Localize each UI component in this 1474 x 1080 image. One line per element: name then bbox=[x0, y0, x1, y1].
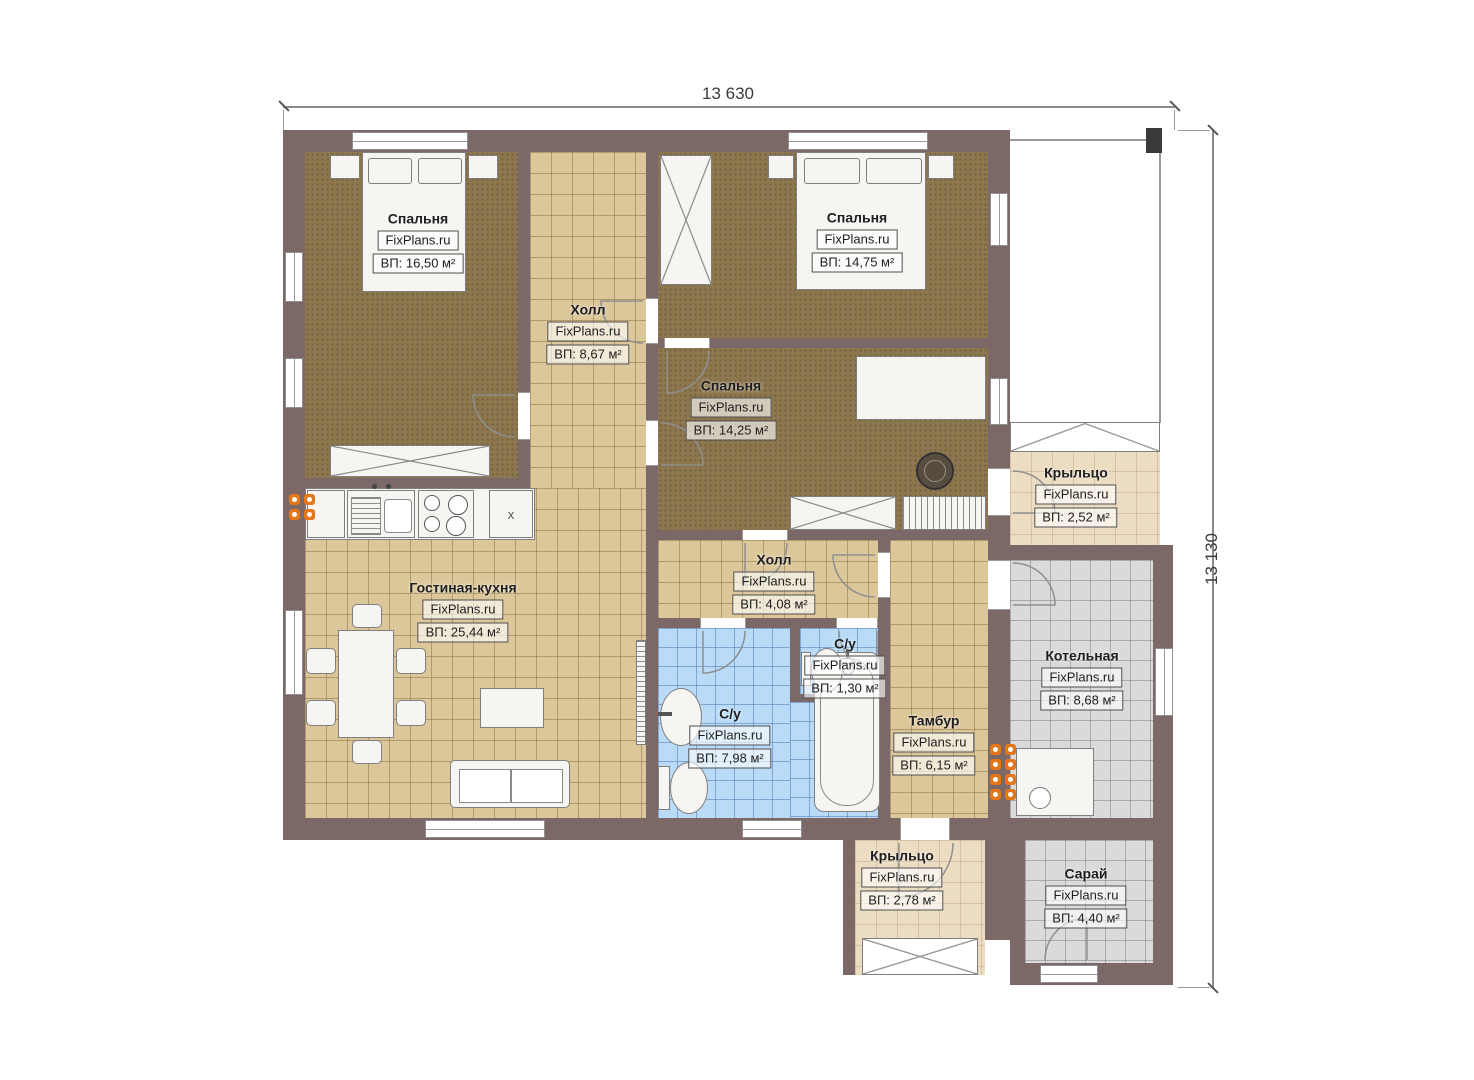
room-watermark: FixPlans.ru bbox=[689, 726, 770, 746]
desk bbox=[856, 356, 986, 420]
dimension-line-top bbox=[283, 106, 1175, 108]
room-name: Крыльцо bbox=[1044, 465, 1108, 481]
room-name: Спальня bbox=[827, 210, 887, 226]
wall-shed-left bbox=[1010, 840, 1025, 963]
pillow bbox=[804, 158, 860, 184]
burner-icon bbox=[424, 495, 440, 511]
door-opening bbox=[646, 298, 658, 344]
cabinet-mark: x bbox=[508, 507, 515, 522]
room-label-hall-small: Холл FixPlans.ru ВП: 4,08 м² bbox=[732, 552, 815, 615]
bath-sink-tap bbox=[658, 712, 672, 716]
door-opening bbox=[742, 530, 788, 540]
door-opening bbox=[900, 818, 950, 840]
room-name: Холл bbox=[570, 302, 605, 318]
wall-boiler-shed bbox=[1010, 818, 1173, 840]
room-name: Сарай bbox=[1064, 866, 1107, 882]
window bbox=[990, 193, 1008, 246]
room-label-tambour: Тамбур FixPlans.ru ВП: 6,15 м² bbox=[892, 713, 975, 776]
burner-icon bbox=[446, 516, 466, 536]
porch-right-steps bbox=[1010, 422, 1160, 452]
room-label-bedroom-2: Спальня FixPlans.ru ВП: 14,75 м² bbox=[812, 210, 903, 273]
nightstand bbox=[928, 155, 954, 179]
shelf bbox=[636, 640, 646, 745]
room-label-wc-small: С/у FixPlans.ru ВП: 1,30 м² bbox=[803, 636, 886, 699]
cabinet: x bbox=[489, 490, 533, 538]
room-label-bathroom: С/у FixPlans.ru ВП: 7,98 м² bbox=[688, 706, 771, 769]
room-area: ВП: 16,50 м² bbox=[373, 254, 464, 274]
room-watermark: FixPlans.ru bbox=[422, 600, 503, 620]
room-name: С/у bbox=[834, 636, 856, 652]
room-label-bedroom-3: Спальня FixPlans.ru ВП: 14,25 м² bbox=[686, 378, 777, 441]
room-area: ВП: 8,68 м² bbox=[1040, 691, 1123, 711]
wardrobe-x-icon bbox=[331, 446, 489, 476]
wardrobe-x-icon bbox=[791, 497, 895, 529]
floor-tambour bbox=[890, 540, 988, 818]
room-label-boiler-room: Котельная FixPlans.ru ВП: 8,68 м² bbox=[1040, 648, 1123, 711]
room-area: ВП: 7,98 м² bbox=[688, 749, 771, 769]
room-area: ВП: 14,25 м² bbox=[686, 421, 777, 441]
room-watermark: FixPlans.ru bbox=[690, 398, 771, 418]
room-watermark: FixPlans.ru bbox=[733, 572, 814, 592]
room-label-porch-bottom: Крыльцо FixPlans.ru ВП: 2,78 м² bbox=[860, 848, 943, 911]
door-arc bbox=[832, 554, 876, 598]
burner-icon bbox=[424, 516, 440, 532]
room-watermark: FixPlans.ru bbox=[1035, 485, 1116, 505]
room-label-living-kitchen: Гостиная-кухня FixPlans.ru ВП: 25,44 м² bbox=[409, 580, 516, 643]
wall-porch-bottom-left bbox=[843, 840, 855, 975]
room-name: Спальня bbox=[701, 378, 761, 394]
door-opening bbox=[518, 392, 530, 440]
steps-hatch-icon bbox=[1011, 423, 1159, 451]
room-watermark: FixPlans.ru bbox=[377, 231, 458, 251]
room-area: ВП: 2,78 м² bbox=[860, 891, 943, 911]
window bbox=[285, 252, 303, 302]
chair bbox=[306, 648, 336, 674]
room-label-shed: Сарай FixPlans.ru ВП: 4,40 м² bbox=[1044, 866, 1127, 929]
wall-porch-bottom-right bbox=[985, 840, 1010, 940]
door-opening bbox=[664, 338, 710, 348]
porch-bottom-steps bbox=[862, 938, 978, 975]
door-arc bbox=[1012, 562, 1056, 606]
extension-line bbox=[1178, 130, 1210, 131]
door-opening bbox=[988, 560, 1010, 610]
nightstand bbox=[768, 155, 794, 179]
room-label-porch-right: Крыльцо FixPlans.ru ВП: 2,52 м² bbox=[1034, 465, 1117, 528]
nightstand bbox=[468, 155, 498, 179]
faucet-dot bbox=[386, 484, 391, 489]
pillow bbox=[866, 158, 922, 184]
chair bbox=[306, 700, 336, 726]
wall-hall-bedrooms bbox=[646, 152, 658, 818]
door-opening bbox=[988, 468, 1010, 516]
boundary-line-top bbox=[1010, 139, 1160, 141]
wall-boiler-top bbox=[1010, 545, 1153, 560]
wardrobe bbox=[660, 155, 712, 285]
room-watermark: FixPlans.ru bbox=[893, 733, 974, 753]
door-opening bbox=[646, 420, 658, 466]
pillow bbox=[368, 158, 412, 184]
steps-hatch-icon bbox=[863, 939, 977, 974]
room-name: С/у bbox=[719, 706, 741, 722]
dimension-value-right: 13 130 bbox=[1202, 533, 1222, 585]
room-watermark: FixPlans.ru bbox=[804, 656, 885, 676]
chair bbox=[396, 700, 426, 726]
dimension-value-top: 13 630 bbox=[702, 84, 754, 104]
room-watermark: FixPlans.ru bbox=[861, 868, 942, 888]
room-watermark: FixPlans.ru bbox=[816, 230, 897, 250]
window bbox=[1155, 648, 1173, 716]
wall-bedroom3-hall bbox=[658, 530, 988, 540]
burner-icon bbox=[448, 495, 468, 515]
chair bbox=[352, 740, 382, 764]
wardrobe-x-icon bbox=[661, 156, 711, 284]
room-area: ВП: 2,52 м² bbox=[1034, 508, 1117, 528]
chair bbox=[396, 648, 426, 674]
coffee-table bbox=[480, 688, 544, 728]
room-area: ВП: 4,40 м² bbox=[1044, 909, 1127, 929]
sink-basin bbox=[384, 499, 412, 533]
room-name: Гостиная-кухня bbox=[409, 580, 516, 596]
room-watermark: FixPlans.ru bbox=[1045, 886, 1126, 906]
drainboard bbox=[351, 497, 381, 535]
toilet-tank bbox=[658, 766, 670, 810]
door-arc bbox=[472, 394, 516, 438]
pillar bbox=[1146, 128, 1162, 153]
radiator bbox=[990, 744, 1016, 800]
room-area: ВП: 14,75 м² bbox=[812, 253, 903, 273]
dresser bbox=[902, 496, 986, 530]
room-name: Крыльцо bbox=[870, 848, 934, 864]
faucet-dot bbox=[372, 484, 377, 489]
extension-line bbox=[1174, 110, 1175, 130]
sofa-cushion bbox=[459, 769, 511, 803]
kitchen-sink bbox=[347, 490, 415, 538]
room-watermark: FixPlans.ru bbox=[547, 322, 628, 342]
window bbox=[425, 820, 545, 838]
boiler bbox=[1016, 748, 1094, 816]
window bbox=[788, 132, 928, 150]
room-name: Холл bbox=[756, 552, 791, 568]
window bbox=[285, 610, 303, 695]
wall-wc-left bbox=[790, 628, 800, 694]
room-area: ВП: 8,67 м² bbox=[546, 345, 629, 365]
sofa-cushion bbox=[511, 769, 563, 803]
window bbox=[742, 820, 802, 838]
room-area: ВП: 4,08 м² bbox=[732, 595, 815, 615]
window bbox=[285, 358, 303, 408]
extension-line bbox=[283, 110, 284, 130]
pillow bbox=[418, 158, 462, 184]
room-name: Спальня bbox=[388, 211, 448, 227]
door-arc bbox=[702, 630, 746, 674]
wardrobe bbox=[790, 496, 896, 530]
room-area: ВП: 6,15 м² bbox=[892, 756, 975, 776]
door-opening bbox=[700, 618, 746, 628]
room-name: Тамбур bbox=[909, 713, 960, 729]
window bbox=[990, 378, 1008, 425]
toilet-bowl bbox=[670, 762, 708, 814]
floor-plan: x Спальня FixPlans.ru ВП: 16,50 м² Холл … bbox=[0, 0, 1474, 1080]
door-opening bbox=[836, 618, 878, 628]
dining-table bbox=[338, 630, 394, 738]
door-opening bbox=[878, 552, 890, 598]
boundary-line-right bbox=[1159, 139, 1161, 423]
room-area: ВП: 1,30 м² bbox=[803, 679, 886, 699]
room-watermark: FixPlans.ru bbox=[1041, 668, 1122, 688]
chair bbox=[352, 604, 382, 628]
nightstand bbox=[330, 155, 360, 179]
radiator bbox=[289, 494, 315, 520]
room-label-hall: Холл FixPlans.ru ВП: 8,67 м² bbox=[546, 302, 629, 365]
wardrobe bbox=[330, 445, 490, 477]
boiler-dial-icon bbox=[1029, 787, 1051, 809]
sofa bbox=[450, 760, 570, 808]
window bbox=[1040, 965, 1098, 983]
room-label-bedroom-1: Спальня FixPlans.ru ВП: 16,50 м² bbox=[373, 211, 464, 274]
wall-bedroom1-bottom bbox=[305, 478, 530, 488]
wall-left bbox=[283, 130, 305, 840]
plant-pot-icon bbox=[916, 452, 954, 490]
extension-line bbox=[1178, 987, 1210, 988]
room-area: ВП: 25,44 м² bbox=[418, 623, 509, 643]
room-name: Котельная bbox=[1045, 648, 1118, 664]
window bbox=[352, 132, 468, 150]
